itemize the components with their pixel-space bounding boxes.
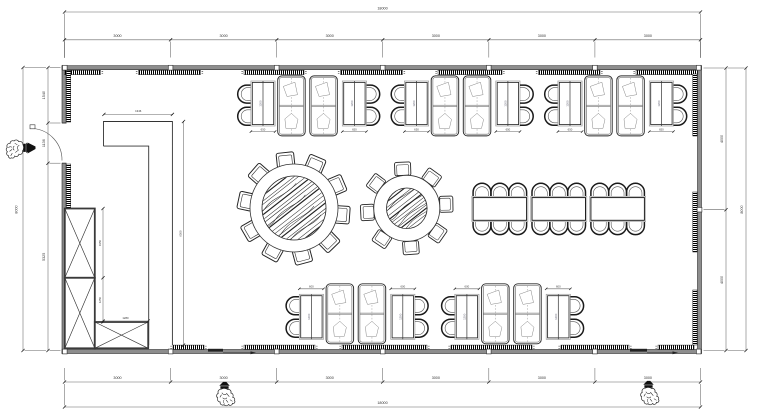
svg-text:3000: 3000: [219, 34, 227, 38]
svg-text:8000: 8000: [14, 205, 18, 213]
svg-text:8000: 8000: [740, 205, 744, 213]
svg-text:3000: 3000: [644, 34, 652, 38]
svg-text:5325: 5325: [42, 253, 46, 261]
svg-text:3000: 3000: [113, 376, 121, 380]
svg-text:1280: 1280: [122, 316, 129, 320]
svg-text:3000: 3000: [538, 34, 546, 38]
svg-text:3000: 3000: [432, 376, 440, 380]
svg-text:3000: 3000: [432, 34, 440, 38]
svg-text:3000: 3000: [113, 34, 121, 38]
svg-text:1250: 1250: [98, 296, 102, 303]
svg-text:6300: 6300: [178, 230, 182, 237]
svg-text:1540: 1540: [42, 91, 46, 99]
svg-text:4000: 4000: [720, 135, 724, 143]
svg-text:18000: 18000: [377, 401, 387, 405]
svg-text:4000: 4000: [720, 276, 724, 284]
svg-text:3000: 3000: [219, 376, 227, 380]
svg-text:1136: 1136: [42, 139, 46, 147]
svg-text:18000: 18000: [377, 7, 387, 11]
svg-text:1346: 1346: [135, 109, 142, 113]
svg-text:1950: 1950: [98, 239, 102, 246]
svg-text:3000: 3000: [326, 34, 334, 38]
svg-text:3000: 3000: [538, 376, 546, 380]
svg-text:3000: 3000: [326, 376, 334, 380]
svg-text:3000: 3000: [644, 376, 652, 380]
